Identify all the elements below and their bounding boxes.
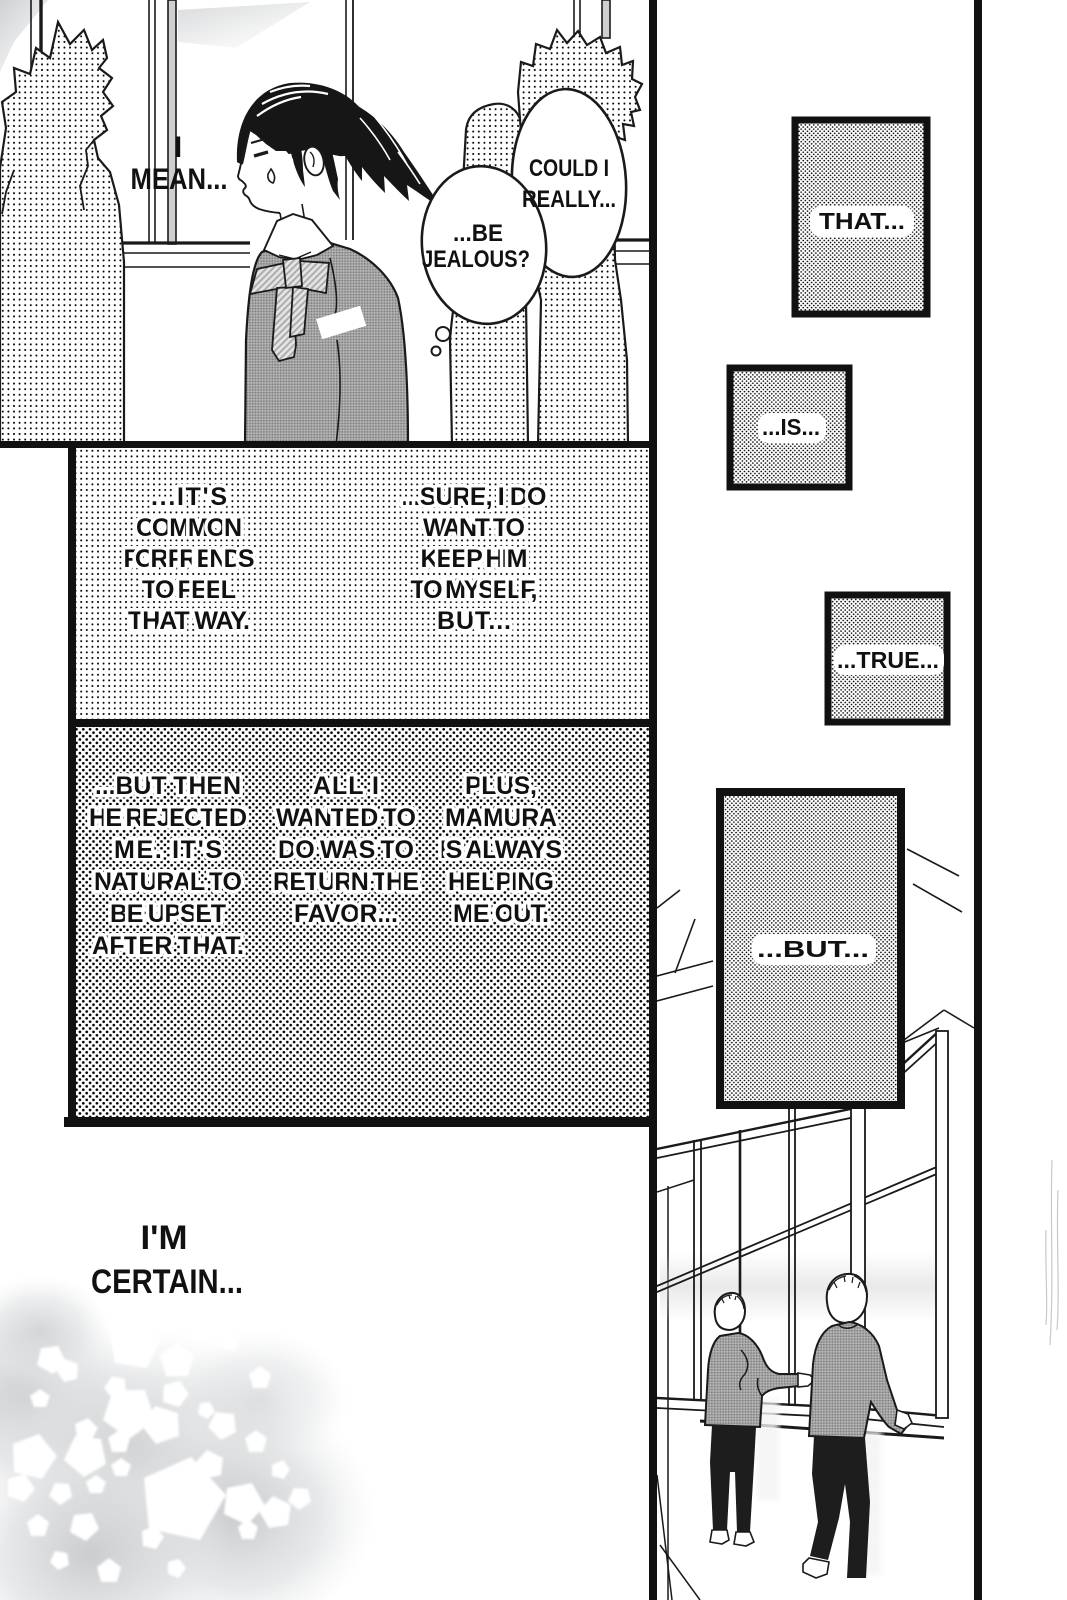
svg-text:ME OUT.: ME OUT. (453, 900, 549, 928)
svg-text:...BUT THEN: ...BUT THEN (95, 772, 241, 800)
svg-text:KEEP HIM: KEEP HIM (421, 545, 528, 573)
svg-text:MEAN...: MEAN... (131, 163, 228, 196)
svg-text:IS ALWAYS: IS ALWAYS (440, 836, 562, 864)
svg-text:REALLY...: REALLY... (522, 186, 616, 213)
svg-text:PLUS,: PLUS, (465, 772, 537, 800)
svg-text:...IT'S: ...IT'S (151, 483, 227, 511)
svg-text:ALL I: ALL I (313, 772, 379, 800)
svg-text:RETURN THE: RETURN THE (273, 868, 419, 896)
svg-text:CERTAIN...: CERTAIN... (91, 1263, 243, 1301)
svg-text:TO MYSELF,: TO MYSELF, (411, 576, 538, 604)
svg-text:...IS...: ...IS... (762, 414, 820, 440)
svg-text:FAVOR...: FAVOR... (294, 900, 398, 928)
svg-text:ME. IT'S: ME. IT'S (114, 836, 222, 864)
svg-text:...BUT...: ...BUT... (757, 936, 869, 962)
svg-text:BUT...: BUT... (437, 607, 511, 635)
svg-text:THAT WAY.: THAT WAY. (128, 607, 250, 635)
svg-text:THAT...: THAT... (819, 208, 905, 234)
svg-text:...SURE, I DO: ...SURE, I DO (402, 483, 547, 511)
svg-text:COULD I: COULD I (529, 155, 609, 182)
svg-text:...BE: ...BE (453, 220, 503, 247)
svg-text:HELPING: HELPING (448, 868, 554, 896)
svg-text:HE REJECTED: HE REJECTED (89, 804, 247, 832)
svg-text:I'M: I'M (141, 1219, 188, 1257)
svg-text:BE UPSET: BE UPSET (110, 900, 226, 928)
svg-text:JEALOUS?: JEALOUS? (422, 246, 530, 273)
svg-text:...TRUE...: ...TRUE... (837, 647, 939, 673)
svg-text:WANT TO: WANT TO (423, 514, 525, 542)
svg-text:COMMON: COMMON (136, 514, 242, 542)
svg-text:FOR FRIENDS: FOR FRIENDS (124, 545, 255, 573)
svg-text:WANTED TO: WANTED TO (276, 804, 416, 832)
svg-text:I: I (174, 131, 182, 164)
svg-text:AFTER THAT.: AFTER THAT. (92, 932, 244, 960)
svg-text:TO FEEL: TO FEEL (142, 576, 236, 604)
svg-text:MAMURA: MAMURA (445, 804, 557, 832)
svg-text:DO WAS TO: DO WAS TO (278, 836, 414, 864)
svg-text:NATURAL TO: NATURAL TO (94, 868, 242, 896)
